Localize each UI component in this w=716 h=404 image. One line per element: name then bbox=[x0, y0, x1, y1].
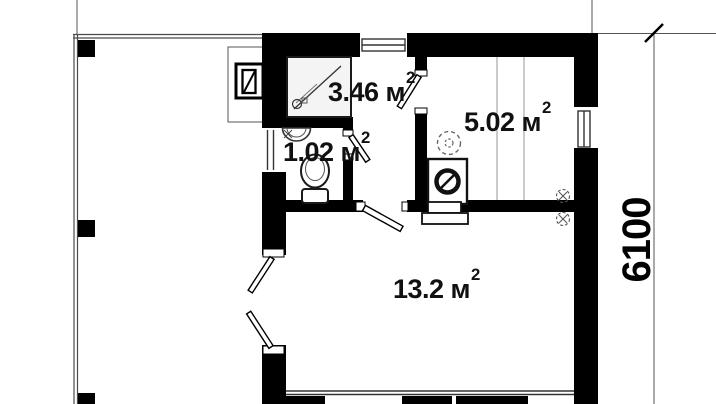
extension-line bbox=[77, 0, 716, 34]
floor-plan: 3.46 м2 1.02 м2 5.02 м2 13.2 м2 6100 bbox=[0, 0, 716, 404]
room-label-shower: 3.46 м2 bbox=[328, 79, 415, 106]
terrace-post-icon bbox=[78, 40, 95, 404]
stove-icon bbox=[422, 159, 468, 224]
dimension-label: 6100 bbox=[616, 194, 658, 286]
room-label-living: 13.2 м2 bbox=[393, 276, 480, 303]
room-label-wc: 1.02 м2 bbox=[283, 139, 370, 166]
room-label-sauna: 5.02 м2 bbox=[464, 109, 551, 136]
boiler-icon bbox=[228, 47, 263, 122]
floor-plan-drawing bbox=[0, 0, 716, 404]
vent-icon bbox=[438, 132, 461, 155]
